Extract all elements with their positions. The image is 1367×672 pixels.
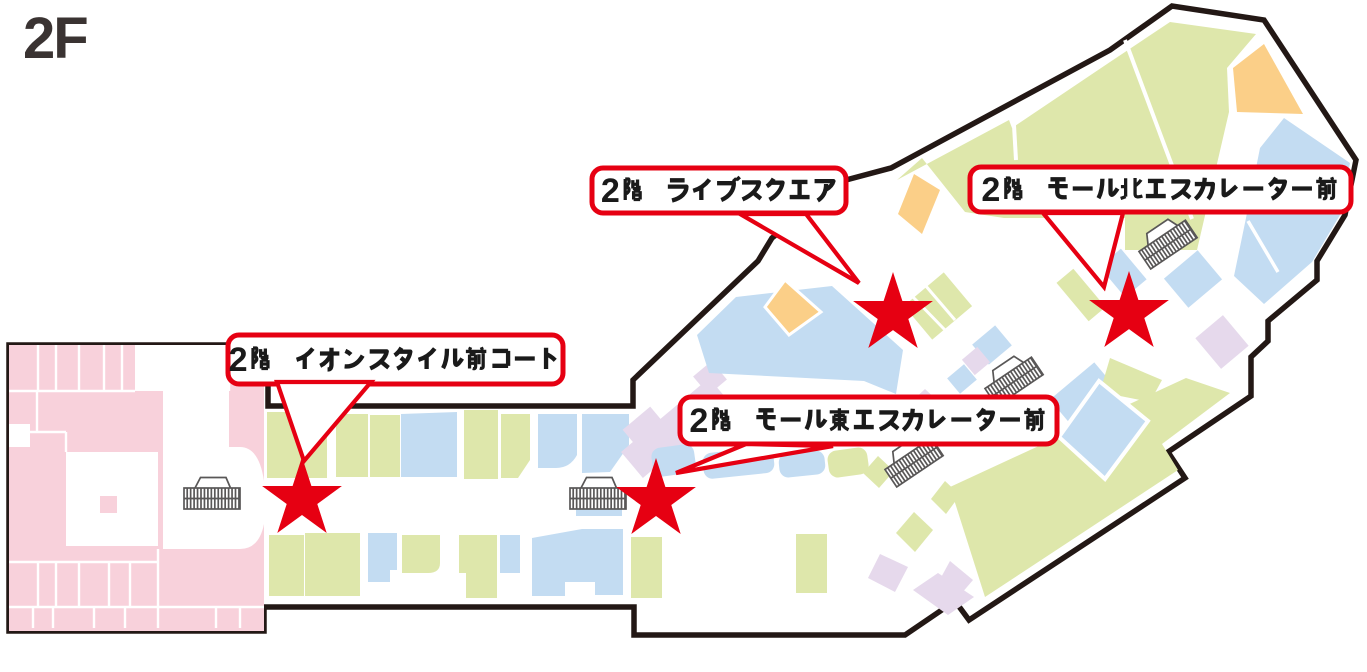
svg-text:2F: 2F	[23, 6, 87, 71]
svg-text:2: 2	[981, 171, 1000, 209]
svg-text:2: 2	[689, 402, 708, 440]
svg-text:2: 2	[601, 172, 620, 210]
svg-text:2: 2	[229, 341, 248, 379]
